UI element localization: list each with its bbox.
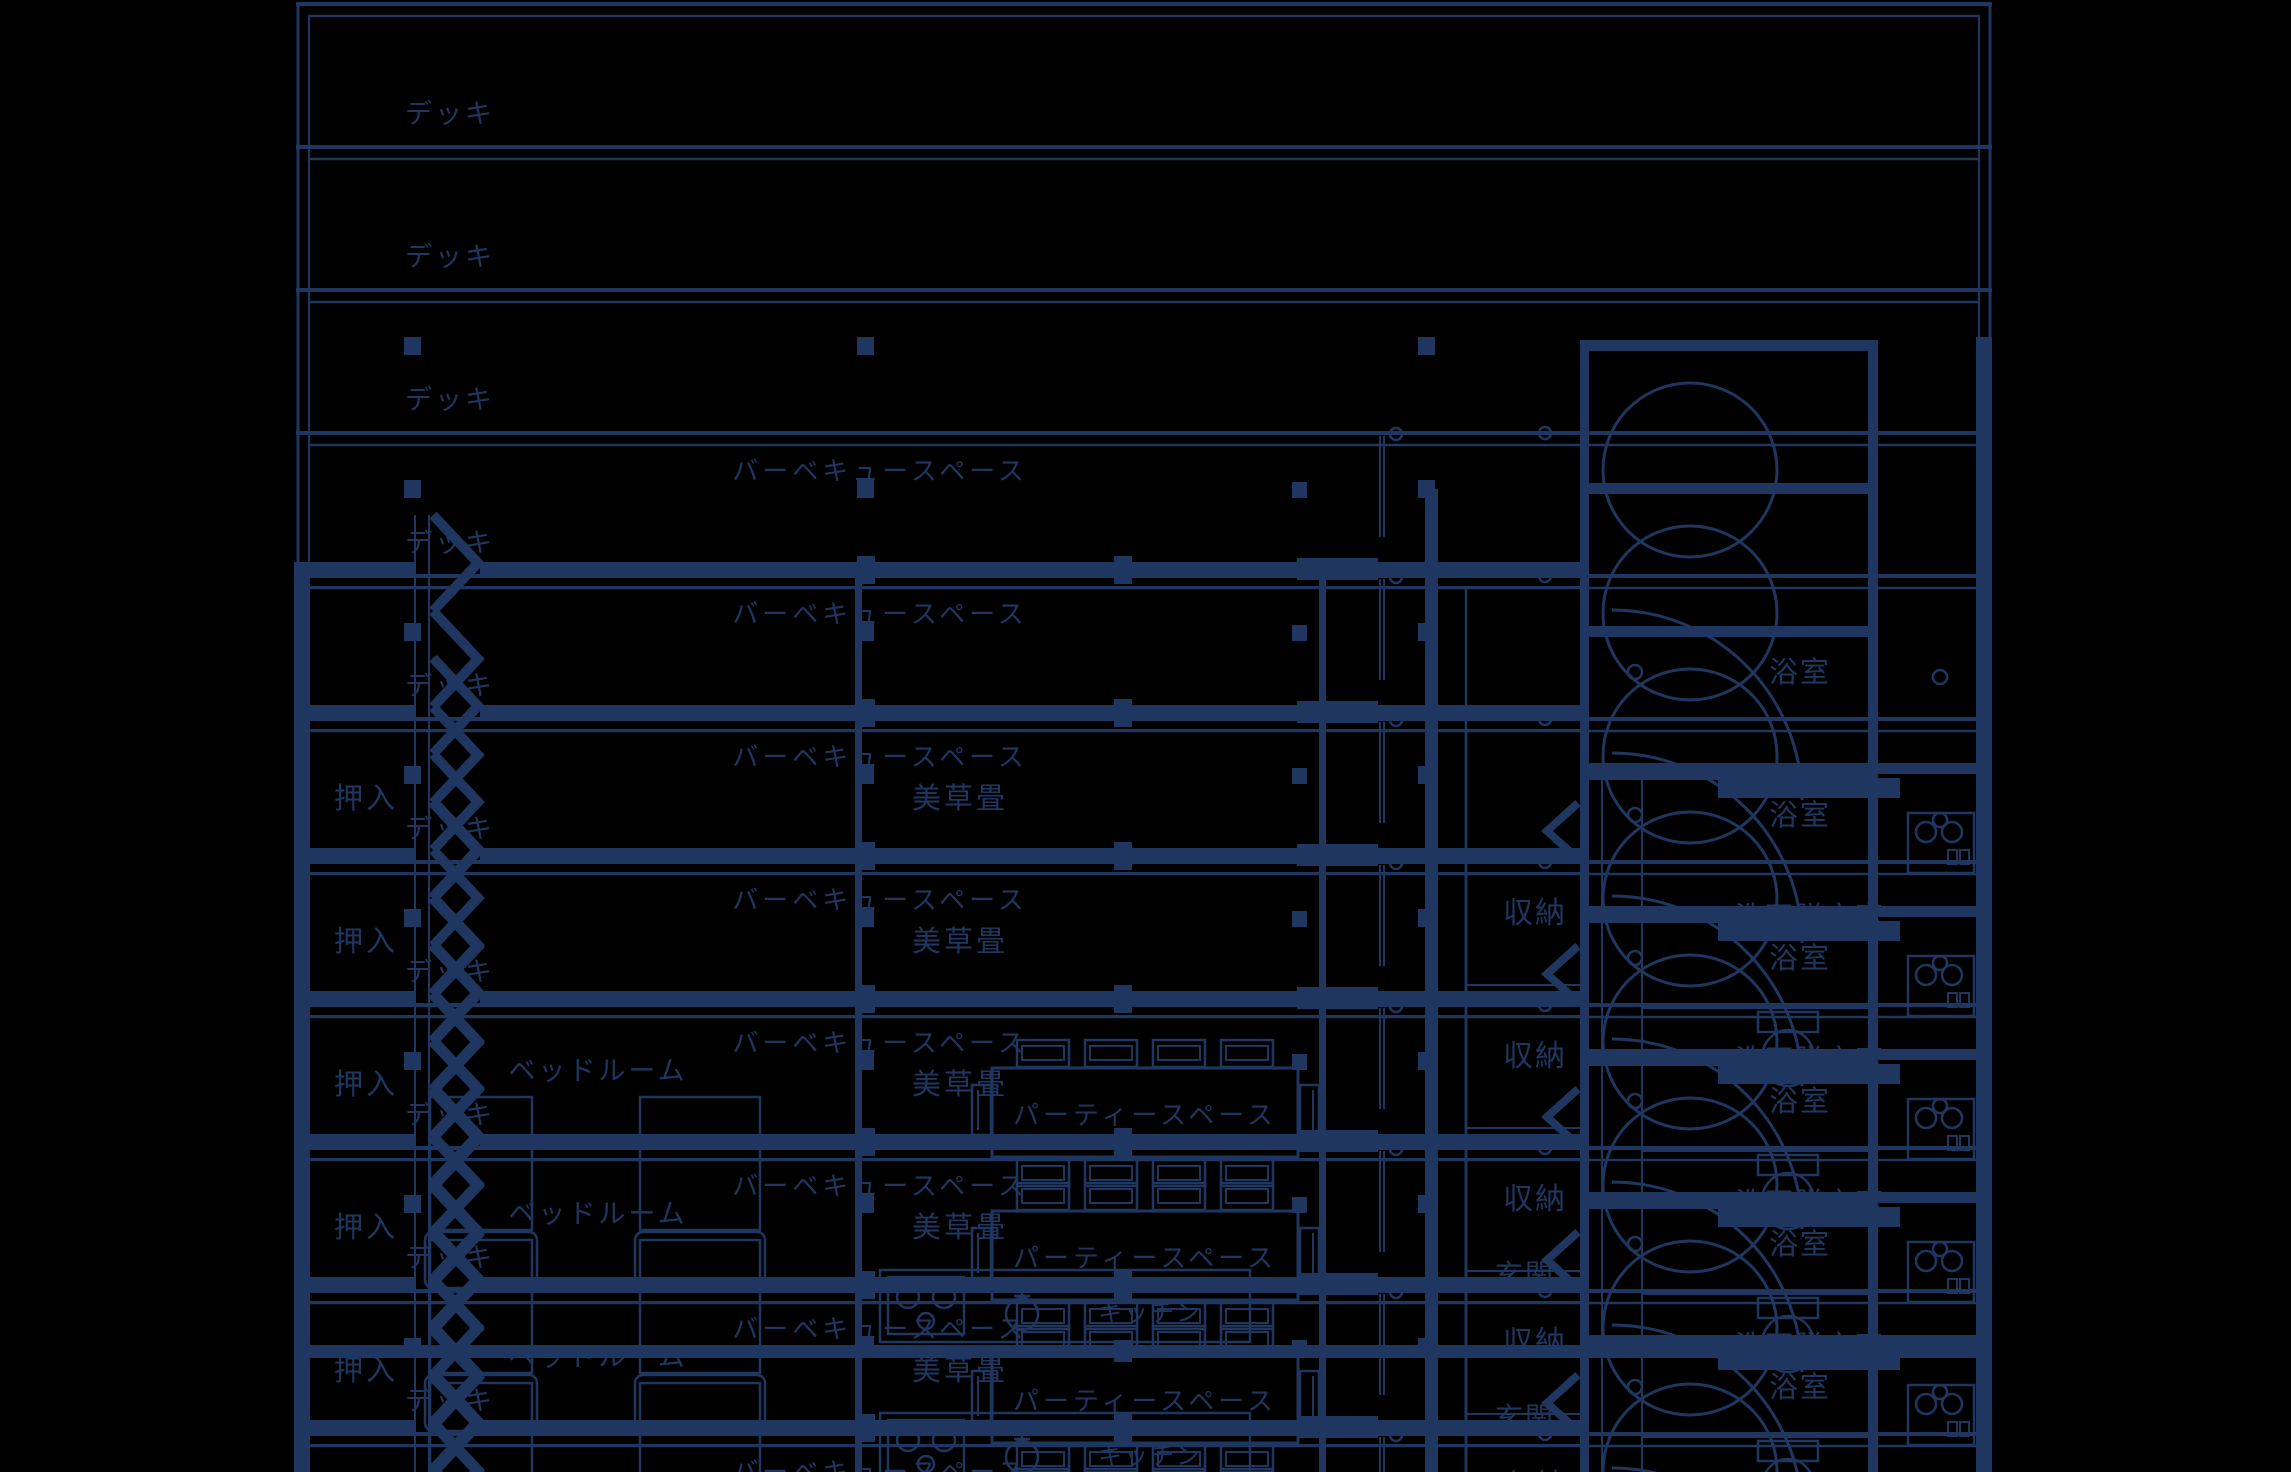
floor-plan-screen: デッキ バーベキュースペース <box>0 0 2291 1472</box>
floor-plan-canvas: デッキ バーベキュースペース <box>0 0 2291 1472</box>
